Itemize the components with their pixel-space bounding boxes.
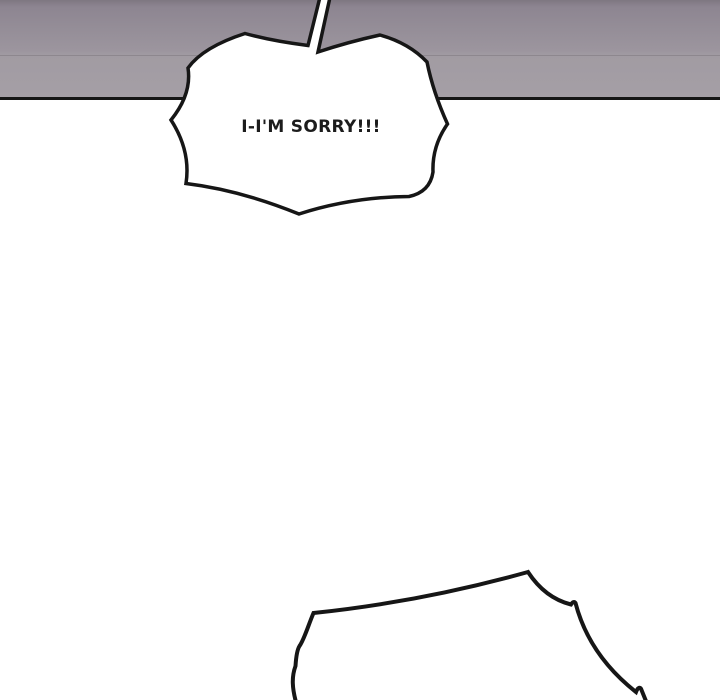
shout-bubble bbox=[171, 0, 448, 214]
panel-art bbox=[0, 0, 720, 700]
speech-bubble-text: I-I'M SORRY!!! bbox=[221, 116, 401, 138]
comic-panel: I-I'M SORRY!!! bbox=[0, 0, 720, 700]
partial-bottom-bubble bbox=[293, 572, 648, 700]
